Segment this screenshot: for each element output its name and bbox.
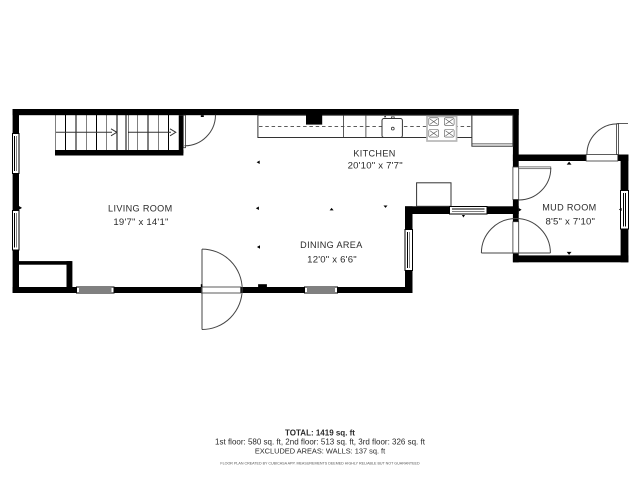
svg-text:LIVING ROOM: LIVING ROOM: [108, 203, 172, 213]
svg-text:FLOOR PLAN CREATED BY CUBICASA: FLOOR PLAN CREATED BY CUBICASA APP. MEAS…: [220, 462, 420, 466]
svg-text:20'10" x 7'7": 20'10" x 7'7": [348, 161, 403, 172]
svg-text:KITCHEN: KITCHEN: [353, 149, 395, 159]
svg-text:TOTAL: 1419 sq. ft: TOTAL: 1419 sq. ft: [285, 429, 355, 438]
svg-text:MUD ROOM: MUD ROOM: [542, 203, 596, 213]
svg-text:12'0" x 6'6": 12'0" x 6'6": [307, 254, 357, 265]
svg-text:DINING AREA: DINING AREA: [300, 240, 363, 250]
svg-text:8'5" x 7'10": 8'5" x 7'10": [545, 217, 595, 228]
svg-text:1st floor: 580 sq. ft, 2nd flo: 1st floor: 580 sq. ft, 2nd floor: 513 sq…: [215, 438, 426, 447]
svg-text:19'7" x 14'1": 19'7" x 14'1": [113, 217, 168, 228]
svg-text:EXCLUDED AREAS: WALLS: 137 sq.: EXCLUDED AREAS: WALLS: 137 sq. ft: [255, 446, 385, 455]
